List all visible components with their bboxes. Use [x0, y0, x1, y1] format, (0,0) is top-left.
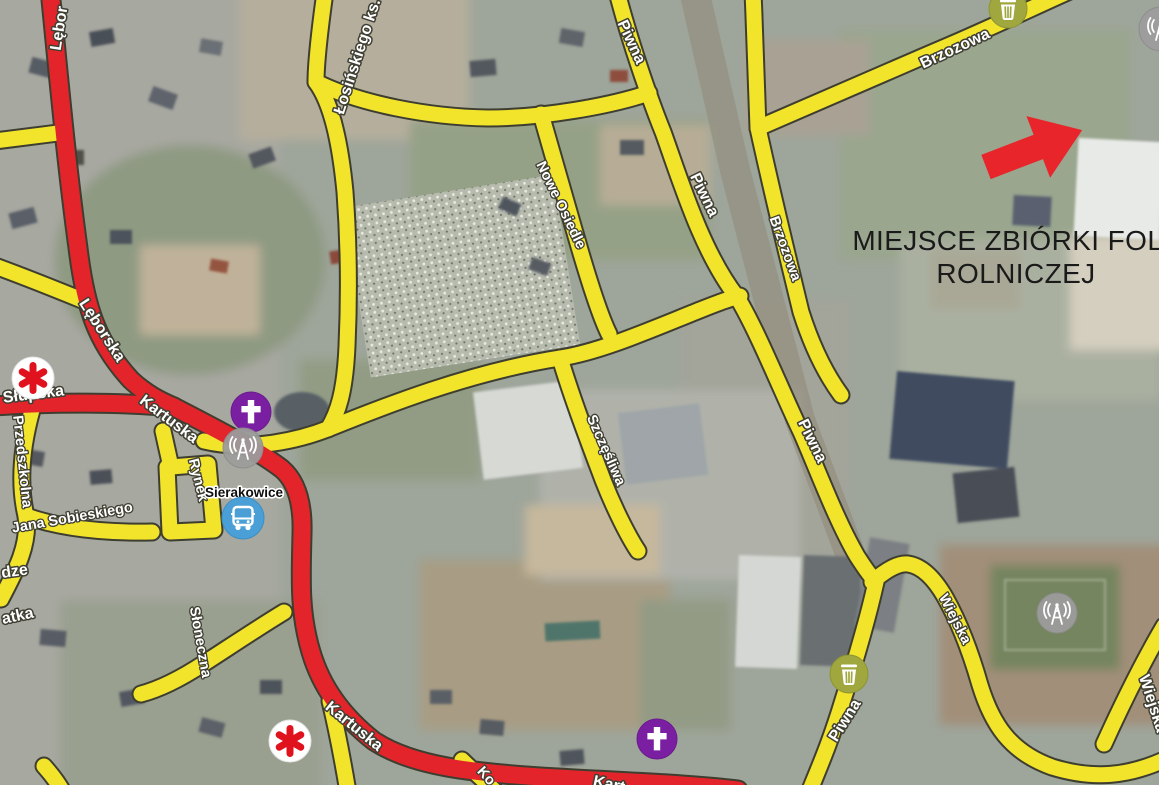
map-canvas: Lębor Łosińskiego ks. Piwna Nowe Osiedle… [0, 0, 1159, 785]
road-stub-top-left [0, 133, 58, 141]
bus-icon [222, 497, 264, 539]
annotation-line-2: ROLNICZEJ [936, 258, 1095, 289]
church-cross-icon [231, 392, 271, 432]
radio-antenna-icon [1037, 593, 1077, 633]
road-brzozowa-north [753, 0, 758, 128]
satellite-map: Lębor Łosińskiego ks. Piwna Nowe Osiedle… [0, 0, 1159, 785]
trash-bin-icon [830, 655, 868, 693]
medical-asterisk-icon [12, 357, 54, 399]
annotation-line-1: MIEJSCE ZBIÓRKI FOLII [852, 225, 1159, 256]
medical-asterisk-icon [269, 720, 311, 762]
cemetery-area [344, 174, 580, 377]
radio-antenna-icon [223, 428, 263, 468]
church-cross-icon [637, 719, 677, 759]
